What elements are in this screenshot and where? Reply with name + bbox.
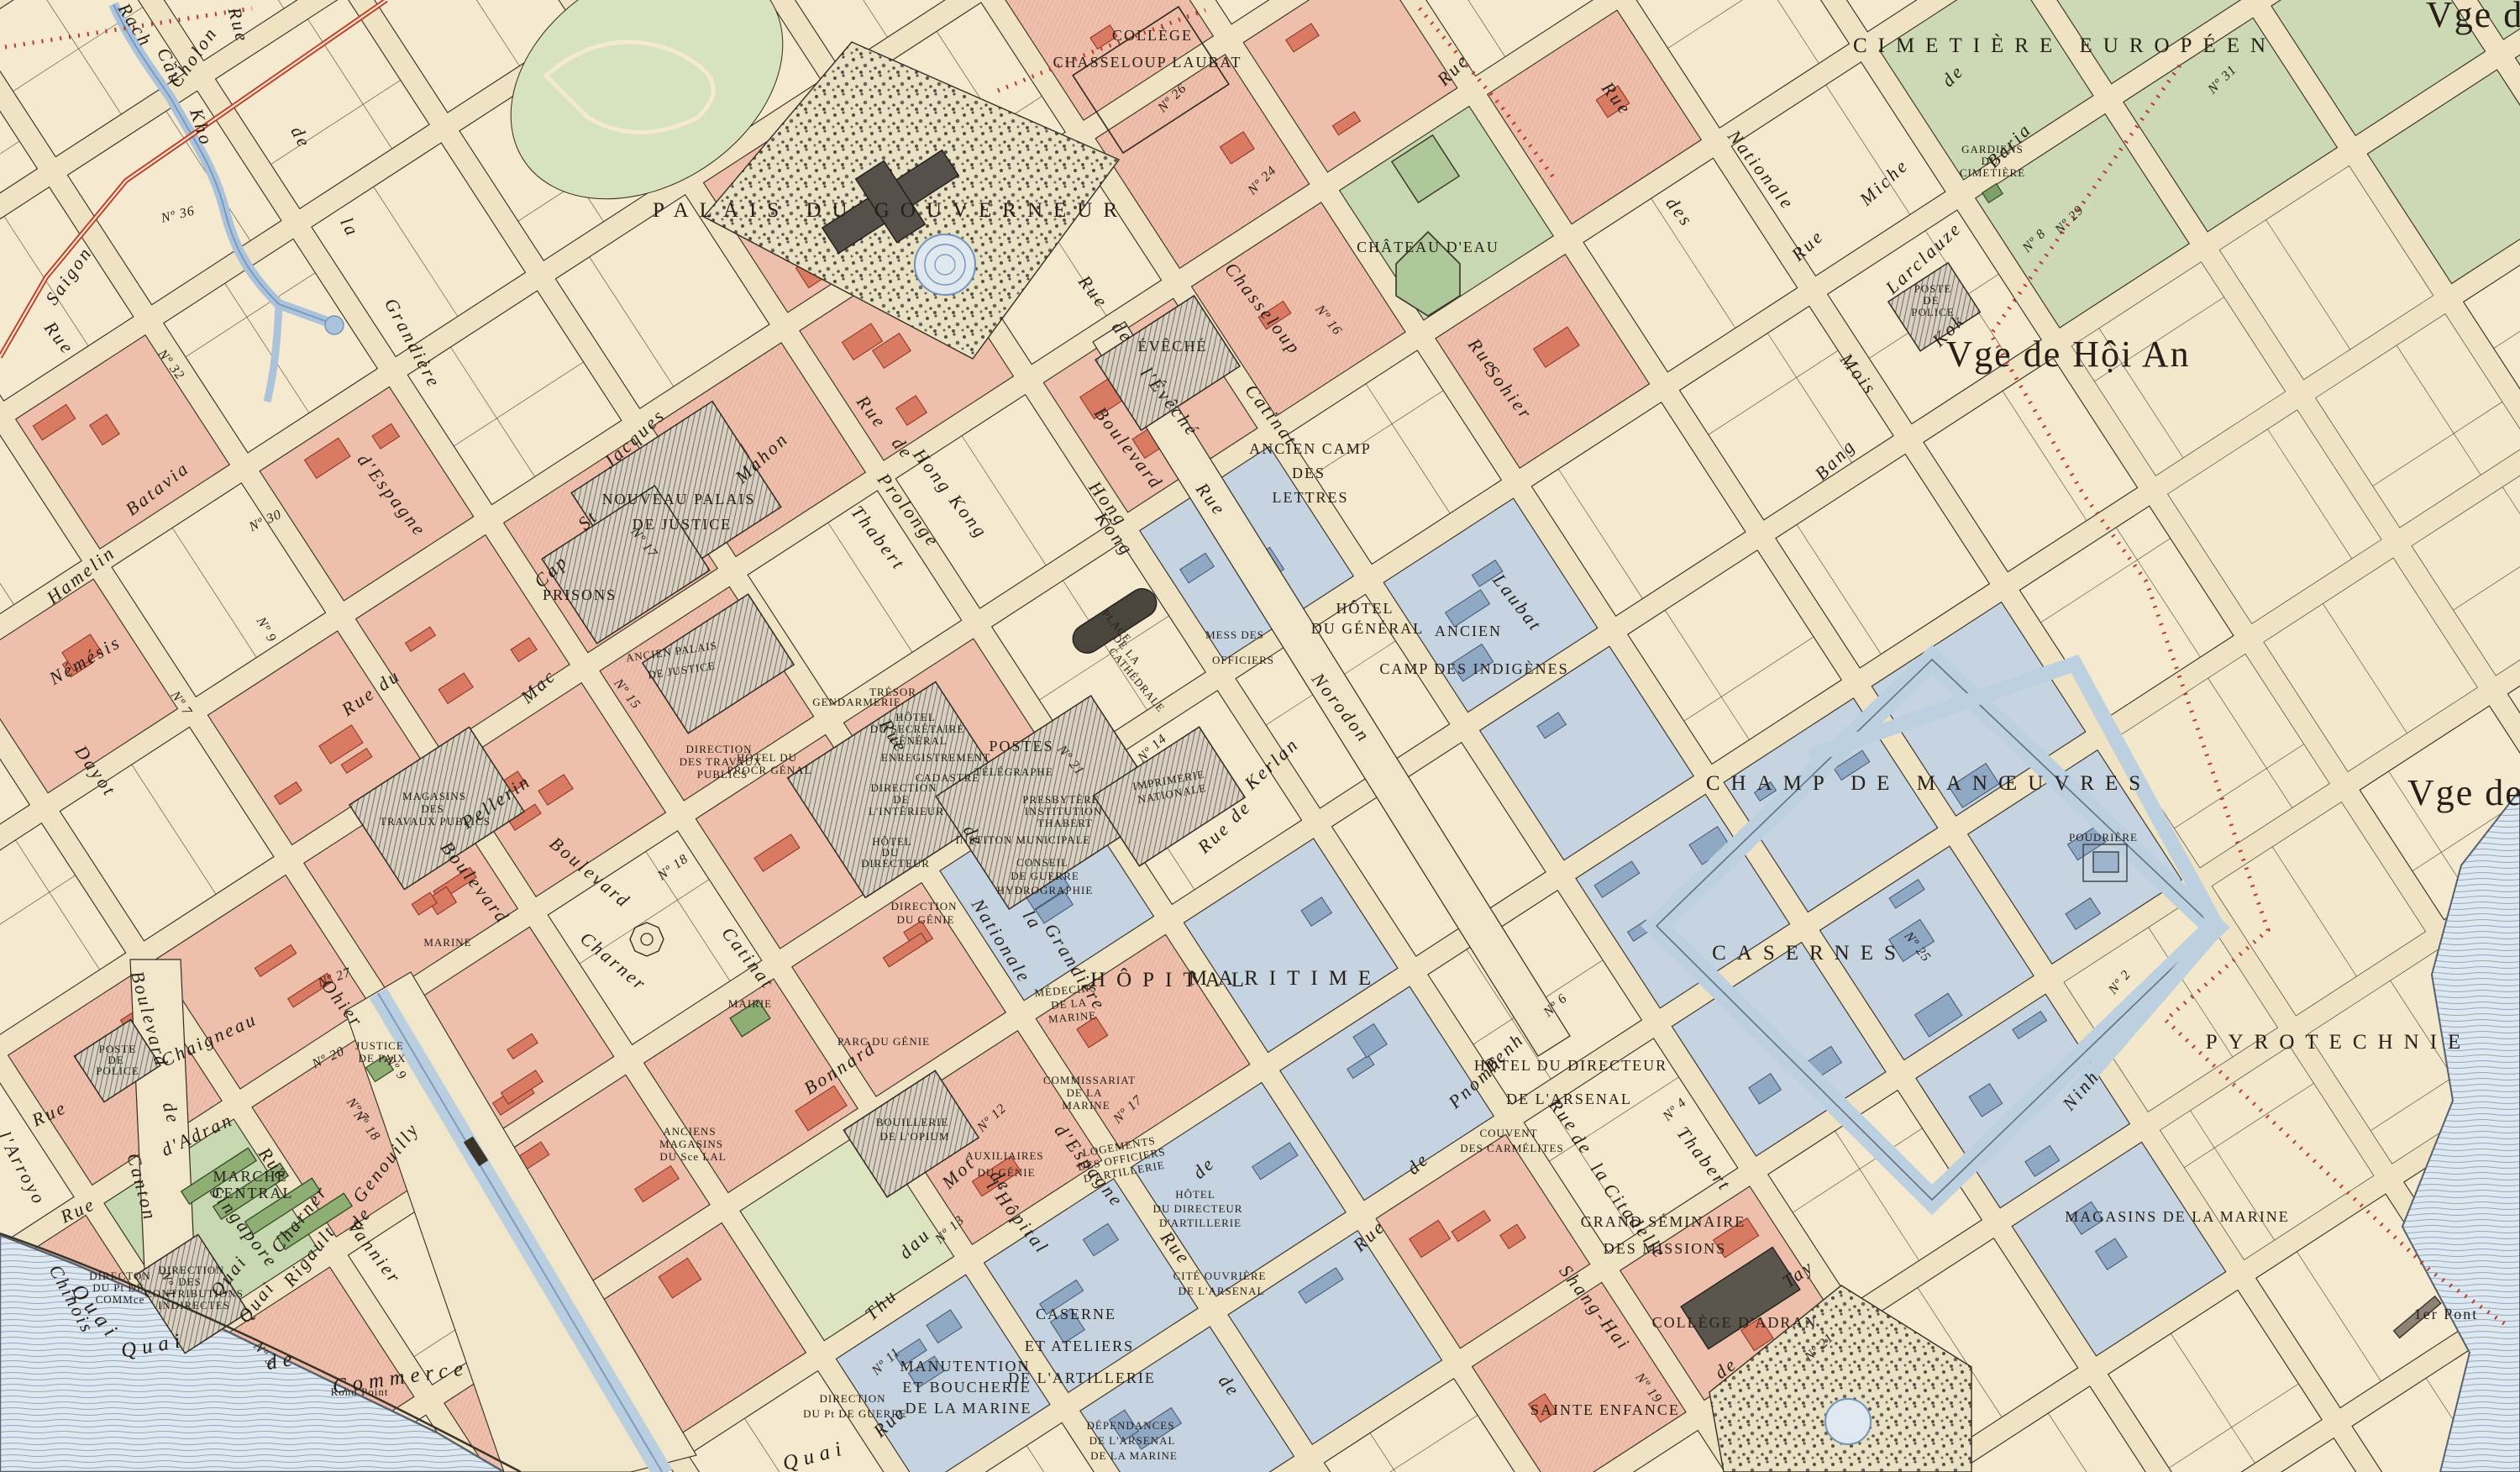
- map-label: ANCIEN CAMP: [1249, 440, 1372, 457]
- map-label: DE L'ARSENAL: [1089, 1434, 1176, 1447]
- map-label: CIMETIÈRE EUROPÉEN: [1853, 34, 2276, 57]
- map-label: D'ARTILLERIE: [1159, 1217, 1242, 1229]
- map-label: PALAIS DU GOUVERNEUR: [653, 199, 1128, 222]
- map-label: MARINE: [423, 936, 471, 949]
- map-label: DE: [1923, 294, 1939, 307]
- map-label: DES: [178, 1275, 202, 1288]
- map-label: CHASSELOUP LAUBAT: [1053, 54, 1242, 71]
- map-label: Vge de Ch: [2426, 0, 2520, 35]
- map-label: HÔTEL: [1336, 599, 1394, 617]
- map-label: MAGASINS DE LA MARINE: [2065, 1208, 2290, 1225]
- map-label: COMMISSARIAT: [1043, 1074, 1136, 1086]
- map-label: DU DIRECTEUR: [1153, 1202, 1243, 1215]
- map-label: MESS DES: [1205, 628, 1264, 641]
- saigon-city-map[interactable]: Vge de ChVge de Hội AnVge de Tân AnPALAI…: [0, 0, 2520, 1472]
- map-label: DIRECTION: [870, 781, 937, 794]
- map-label: DIRECTION: [819, 1392, 885, 1405]
- map-label: CASERNES: [1712, 942, 1907, 965]
- map-label: COLLÈGE D'ADRAN: [1652, 1313, 1818, 1331]
- map-label: DU Pt DE: [92, 1281, 144, 1294]
- map-label: DU Sce LAL: [659, 1150, 726, 1163]
- map-label: DU GÉNIE: [896, 913, 954, 926]
- map-label: MAGASINS: [659, 1138, 723, 1150]
- map-label: DE LA MARINE: [906, 1400, 1032, 1417]
- map-label: CITÉ OUVRIÈRE: [1173, 1270, 1267, 1282]
- map-label: DIRECTION: [890, 900, 957, 912]
- map-label: THABERT: [1037, 817, 1093, 829]
- map-label: PYROTECHNIE: [2206, 1031, 2472, 1054]
- map-label: DE L'ARSENAL: [1179, 1285, 1265, 1297]
- map-label: MANUTENTION: [900, 1358, 1031, 1375]
- map-label: DE GUERRE: [1011, 870, 1079, 882]
- map-label: MARINE: [1062, 1099, 1110, 1112]
- map-label: TÉLÉGRAPHE: [974, 765, 1053, 778]
- map-label: ENFANCE: [1599, 1401, 1680, 1418]
- map-label: DE JUSTICE: [633, 516, 732, 533]
- map-label: DIRECTEUR: [861, 857, 930, 870]
- map-label: ET BOUCHERIE: [902, 1379, 1031, 1396]
- map-label: CHAMP DE MANŒUVRES: [1706, 772, 2151, 795]
- map-label: COLLÈGE: [1112, 26, 1193, 44]
- map-label: ET ATELIERS: [1025, 1338, 1134, 1354]
- garden-pond: [1825, 1399, 1871, 1444]
- map-label: DIRECTON: [89, 1270, 150, 1282]
- map-label: 1er Pont: [2414, 1306, 2479, 1322]
- map-label: DE LA: [1067, 1086, 1103, 1099]
- map-label: CASERNE: [1036, 1306, 1116, 1322]
- map-label: GRAND SÉMINAIRE: [1581, 1212, 1746, 1230]
- map-label: Vge de Hội An: [1945, 334, 2190, 375]
- map-label: POLICE: [96, 1065, 139, 1077]
- map-label: L'INTÉRIEUR: [869, 805, 944, 817]
- map-label: HÔTEL: [895, 711, 936, 723]
- map-label: CONSEIL: [1016, 856, 1068, 869]
- map-label: JUSTICE: [355, 1039, 404, 1052]
- map-label: MAIRIE: [728, 997, 772, 1010]
- map-label: POSTES: [989, 738, 1053, 754]
- map-label: HÔTEL: [1175, 1188, 1215, 1201]
- map-label: HÔTEL DU: [737, 751, 797, 764]
- map-label: ÉVÊCHÉ: [1138, 337, 1208, 355]
- map-label: DÉPENDANCES: [1087, 1419, 1175, 1432]
- map-label: OFFICIERS: [1212, 654, 1274, 666]
- map-label: ANCIEN: [1435, 623, 1502, 639]
- map-label: INSTITUTION: [1025, 805, 1103, 817]
- map-label: DES: [421, 802, 444, 815]
- map-label: DES CARMÉLITES: [1460, 1142, 1563, 1154]
- map-label: PRISONS: [543, 586, 617, 603]
- map-label: PRESBYTÈRE: [1022, 793, 1100, 806]
- map-label: CAMP DES INDIGÈNES: [1379, 660, 1568, 677]
- map-label: MAGASINS: [402, 790, 466, 802]
- map-label: SAINTE: [1530, 1401, 1594, 1418]
- map-label: HYDROGRAPHIE: [997, 884, 1094, 896]
- map-label: ANCIENS: [663, 1125, 716, 1138]
- map-label: PARC DU GÉNIE: [837, 1035, 930, 1048]
- map-label: POSTE: [1914, 282, 1952, 295]
- map-label: AUXILIAIRES: [965, 1149, 1043, 1162]
- map-label: MARITIME: [1189, 967, 1382, 990]
- map-label: LETTRES: [1273, 489, 1349, 506]
- map-label: BOUILLERIE: [876, 1116, 949, 1128]
- map-label: DE: [893, 793, 909, 806]
- map-label: NOUVEAU PALAIS: [602, 491, 756, 507]
- map-label: DE L'OPIUM: [880, 1130, 950, 1143]
- map-label: DE LA MARINE: [1090, 1449, 1178, 1462]
- poudriere-building: [2093, 852, 2118, 872]
- map-label: PROCR GÉNAL: [727, 764, 812, 776]
- map-label: CHÂTEAU D'EAU: [1357, 238, 1499, 255]
- map-label: POUDRIÈRE: [2069, 831, 2138, 844]
- palace-pond: [915, 234, 975, 295]
- map-label: INDIRECTES: [158, 1299, 230, 1312]
- map-label: DES: [1292, 465, 1326, 481]
- map-viewport: Vge de ChVge de Hội AnVge de Tân AnPALAI…: [0, 0, 2520, 1472]
- map-label: COUVENT: [1479, 1127, 1537, 1139]
- map-label: DU GÉNÉRAL: [1311, 619, 1425, 637]
- rond-point-charner: [630, 923, 664, 956]
- map-label: Vge de Tân An: [2407, 772, 2520, 813]
- map-label: TRÉSOR: [869, 686, 916, 698]
